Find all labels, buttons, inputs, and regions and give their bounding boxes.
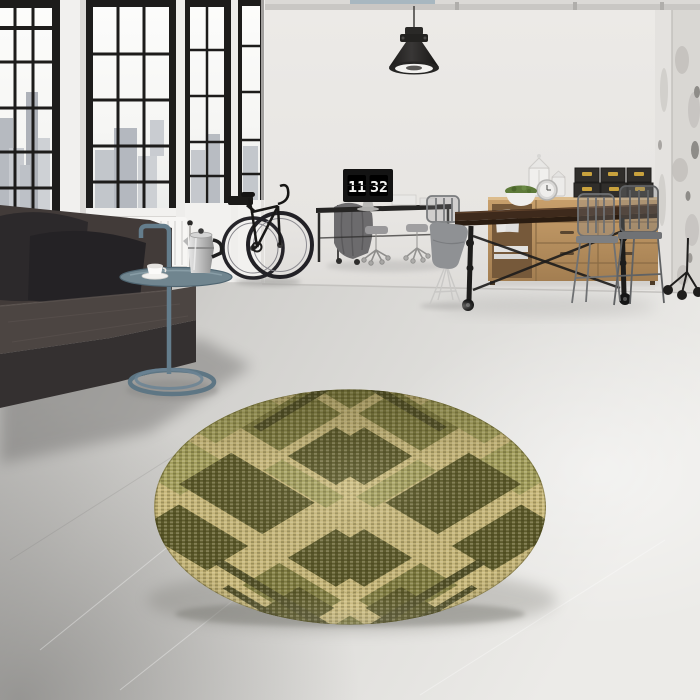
metal-chair-back-left xyxy=(427,196,459,222)
radiator-valve xyxy=(187,220,193,226)
clock-hours: 11 xyxy=(348,178,366,196)
table-clock xyxy=(537,180,557,200)
paper-stack xyxy=(392,195,416,205)
window-bay-2 xyxy=(86,0,176,218)
wall-corner xyxy=(261,0,264,285)
sofa-pillow xyxy=(28,231,146,304)
window-bay-1 xyxy=(0,0,60,228)
loft-room-photo: 11 32 xyxy=(0,0,700,700)
moka-lid-knob xyxy=(198,228,204,234)
concrete-column xyxy=(655,10,700,297)
bike-saddle xyxy=(241,192,255,197)
room-illustration: 11 32 xyxy=(0,0,700,700)
window-bay-4 xyxy=(238,0,264,208)
clock-minutes: 32 xyxy=(370,178,388,196)
window-bay-3 xyxy=(185,0,231,212)
